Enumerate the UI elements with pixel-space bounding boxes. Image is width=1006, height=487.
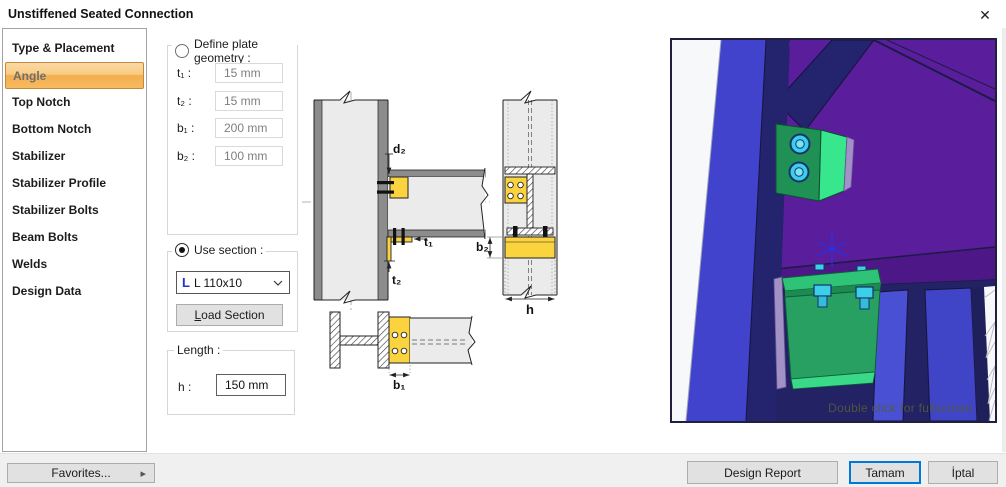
beam-section-web [527, 174, 533, 228]
footer-bar: Favorites... ▸ Design Report Tamam İptal [0, 453, 1006, 487]
sidebar-item-stabilizer[interactable]: Stabilizer [3, 143, 146, 170]
define-plate-geometry-radio[interactable]: Define plate geometry : [172, 37, 297, 65]
dim-label-b2: b₂ [476, 240, 489, 254]
design-report-button[interactable]: Design Report [687, 461, 838, 484]
column-section-flange [330, 312, 340, 368]
seat-plate [505, 237, 555, 258]
sidebar-item-top-notch[interactable]: Top Notch [3, 89, 146, 116]
bolt-mark [543, 226, 548, 237]
connection-diagram: d₂ t₁ t₂ [300, 90, 600, 405]
b1-field[interactable] [215, 118, 283, 138]
side-view: b₂ h [476, 91, 557, 317]
plan-view: b₁ [330, 312, 475, 392]
h-field[interactable] [216, 374, 286, 396]
beam-plan [410, 318, 472, 363]
h-label: h : [178, 380, 191, 394]
top-angle-plate [390, 177, 408, 198]
plate-geometry-group: Define plate geometry : t₁ : t₂ : b₁ : b… [167, 45, 298, 235]
menu-arrow-icon: ▸ [140, 467, 146, 480]
radio-on-icon [175, 243, 189, 257]
t2-field[interactable] [215, 91, 283, 111]
use-section-group: Use section : L L 110x10 Load Section [167, 251, 298, 332]
sidebar-item-welds[interactable]: Welds [3, 251, 146, 278]
elevation-view: d₂ t₁ t₂ [302, 91, 490, 312]
b1-label: b₁ : [177, 121, 194, 135]
3d-viewport[interactable]: Double click for fullscreen [670, 38, 997, 423]
ok-button[interactable]: Tamam [849, 461, 921, 484]
use-section-radio[interactable]: Use section : [172, 243, 266, 257]
beam-section-flange [505, 167, 555, 174]
t1-field[interactable] [215, 63, 283, 83]
column-flange [314, 100, 322, 300]
bolt-icon [392, 332, 398, 338]
sidebar-item-type-placement[interactable]: Type & Placement [3, 35, 146, 62]
bolt-mark [513, 226, 518, 237]
sidebar-item-stabilizer-profile[interactable]: Stabilizer Profile [3, 170, 146, 197]
sidebar-item-stabilizer-bolts[interactable]: Stabilizer Bolts [3, 197, 146, 224]
section-dropdown[interactable]: L L 110x10 [176, 271, 290, 294]
column-flange [378, 100, 388, 300]
load-section-button[interactable]: Load Section [176, 304, 283, 326]
dim-label-h: h [526, 302, 534, 317]
b2-field[interactable] [215, 146, 283, 166]
sidebar-item-design-data[interactable]: Design Data [3, 278, 146, 305]
bolt-icon [508, 182, 514, 188]
dim-label-t1: t₁ [424, 235, 433, 249]
seat-plate-plan [389, 317, 410, 363]
bolt-icon [518, 182, 524, 188]
t2-label: t₂ : [177, 94, 192, 108]
sidebar-item-bottom-notch[interactable]: Bottom Notch [3, 116, 146, 143]
column-leg-3d [925, 288, 977, 421]
favorites-button[interactable]: Favorites... ▸ [7, 463, 155, 483]
column-section-flange [378, 312, 389, 368]
column-section-web [340, 336, 378, 345]
angle-section-icon: L [182, 275, 190, 290]
unstiffened-seated-connection-dialog: Unstiffened Seated Connection ✕ Type & P… [0, 0, 1006, 487]
bolt-mark [402, 228, 405, 245]
bolt-icon [401, 332, 407, 338]
chevron-down-icon [273, 280, 283, 286]
sidebar-item-beam-bolts[interactable]: Beam Bolts [3, 224, 146, 251]
dim-label-d2: d₂ [393, 142, 406, 156]
bolt-mark [393, 228, 396, 245]
t1-label: t₁ : [177, 66, 191, 80]
dialog-title: Unstiffened Seated Connection [8, 7, 193, 21]
section-dropdown-value: L 110x10 [194, 276, 273, 290]
seat-angle-leg [387, 237, 391, 261]
bolt-mark [377, 191, 394, 194]
cancel-button[interactable]: İptal [928, 461, 998, 484]
bolt-icon [815, 264, 824, 270]
right-edge-strip [1002, 28, 1006, 452]
radio-off-icon [175, 44, 189, 58]
dim-label-b1: b₁ [393, 378, 405, 392]
seat-angle-3d [774, 269, 881, 389]
sidebar-item-angle[interactable]: Angle [5, 62, 144, 89]
dim-label-t2: t₂ [392, 273, 401, 287]
bolt-icon [401, 348, 407, 354]
bolt-icon [518, 193, 524, 199]
sidebar: Type & Placement Angle Top Notch Bottom … [2, 28, 147, 452]
top-angle-3d [776, 124, 854, 201]
top-angle-plate [505, 177, 527, 203]
length-group: Length : h : [167, 350, 295, 415]
bolt-icon [508, 193, 514, 199]
beam-top-flange [388, 170, 485, 177]
length-group-title: Length : [174, 343, 223, 357]
bolt-icon [392, 348, 398, 354]
close-icon[interactable]: ✕ [974, 4, 996, 26]
bolt-mark [377, 181, 394, 184]
3d-render [672, 40, 995, 421]
b2-label: b₂ : [177, 149, 195, 163]
